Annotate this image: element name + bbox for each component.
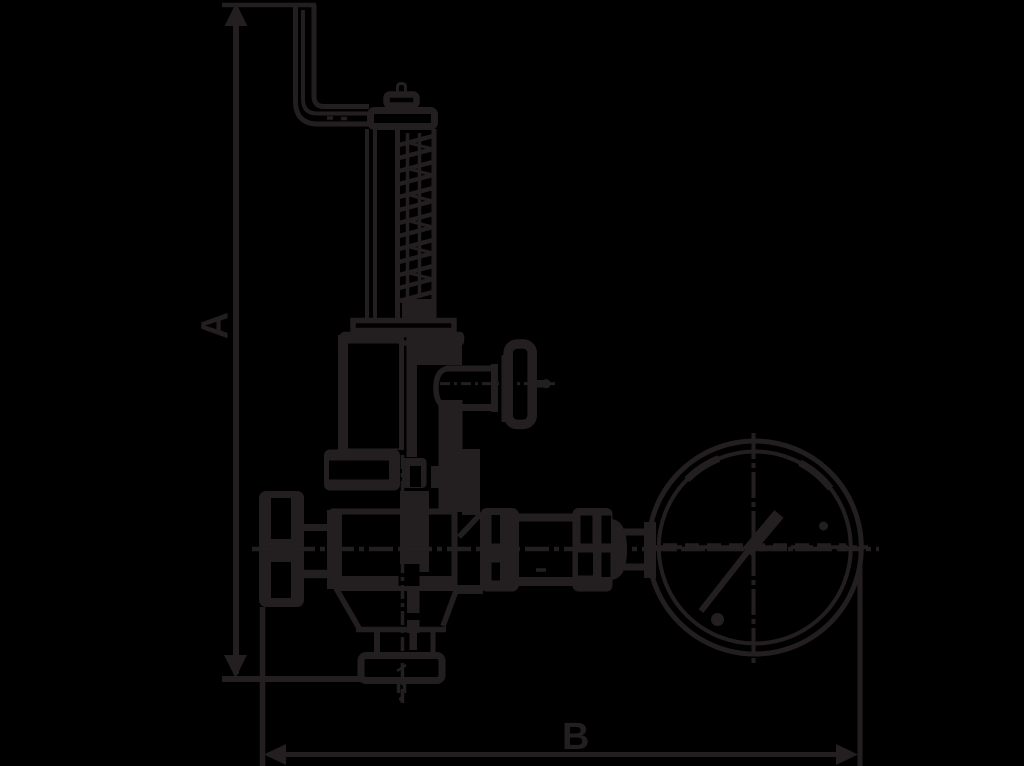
- svg-text:B: B: [562, 716, 589, 758]
- svg-text:A: A: [195, 312, 237, 339]
